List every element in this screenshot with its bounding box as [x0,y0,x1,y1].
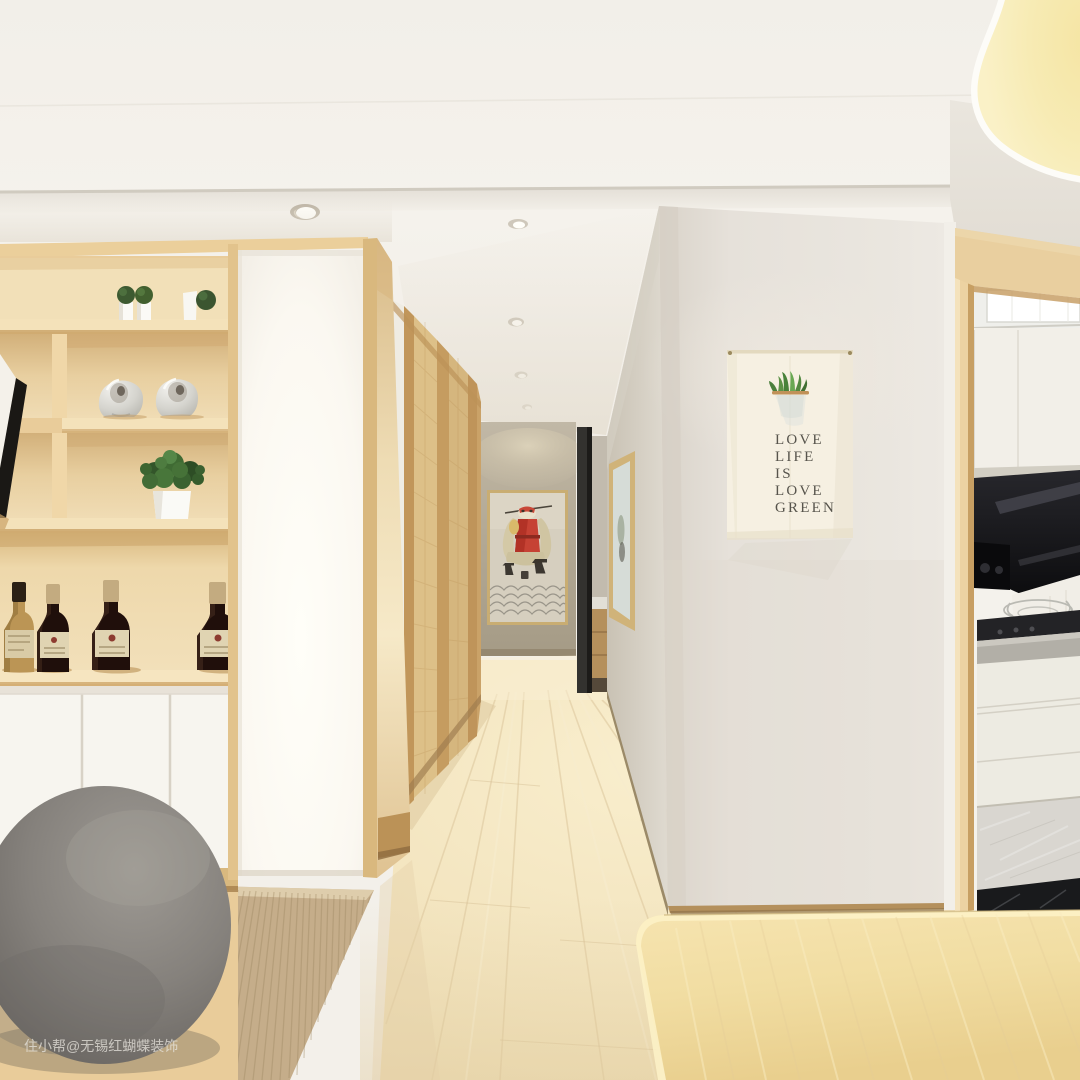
svg-text:住小帮@无锡红蝴蝶装饰: 住小帮@无锡红蝴蝶装饰 [24,1038,178,1054]
svg-text:GREEN: GREEN [775,500,836,516]
svg-text:LIFE: LIFE [775,449,815,465]
svg-text:LOVE: LOVE [775,432,824,448]
svg-text:LOVE: LOVE [775,483,824,499]
svg-text:IS: IS [775,466,793,482]
